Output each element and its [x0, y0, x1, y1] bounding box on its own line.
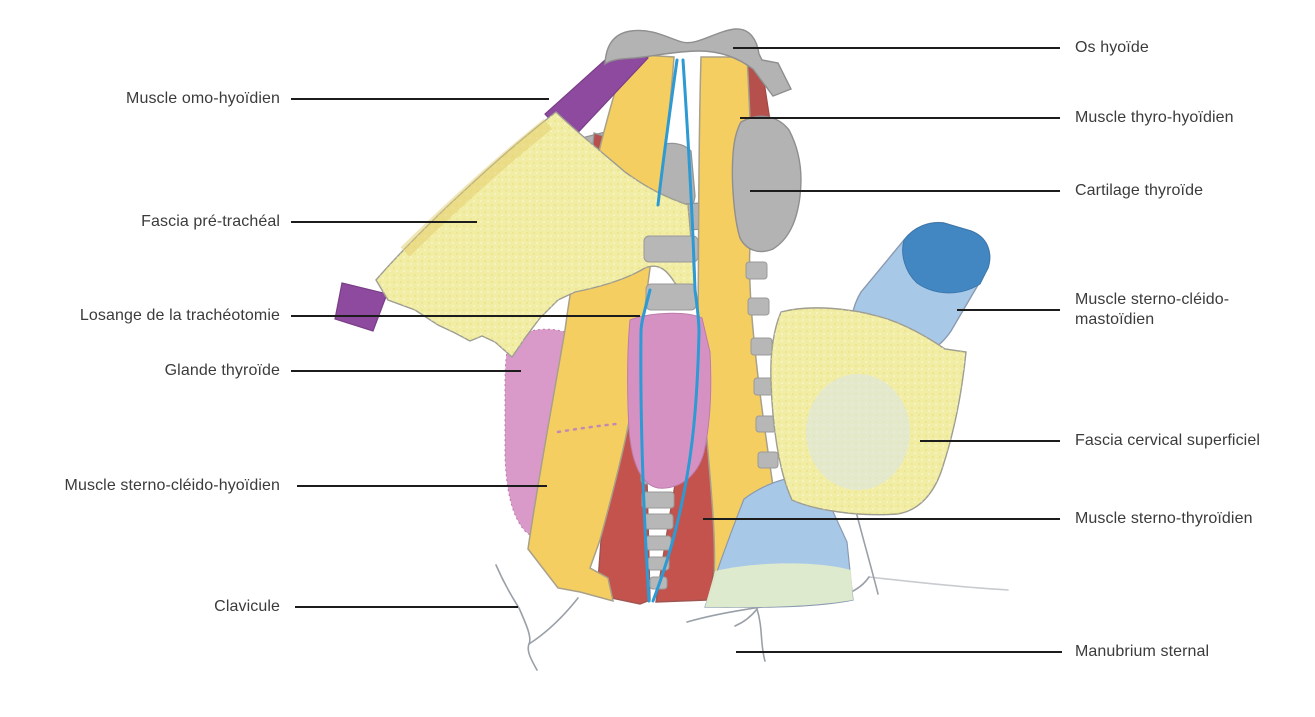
leader-sterno-thyroidien: [703, 518, 1060, 520]
leader-clavicule: [295, 606, 518, 608]
leader-sterno-cleido-hyoidien: [297, 485, 547, 487]
label-clavicule: Clavicule: [0, 597, 280, 617]
leader-fascia-cervical: [920, 440, 1060, 442]
anatomical-figure: Muscle omo-hyoïdien Fascia pré-trachéal …: [0, 0, 1315, 717]
label-fascia-cervical-superficiel: Fascia cervical superficiel: [1075, 431, 1260, 451]
leader-cartilage-thyroide: [750, 190, 1060, 192]
leader-sterno-cleido-mastoidien: [957, 309, 1060, 311]
leader-omo-hyoidien: [291, 98, 549, 100]
label-manubrium-sternal: Manubrium sternal: [1075, 642, 1209, 662]
label-muscle-omo-hyoidien: Muscle omo-hyoïdien: [0, 89, 280, 109]
label-losange-tracheotomie: Losange de la trachéotomie: [0, 306, 280, 326]
label-glande-thyroide: Glande thyroïde: [0, 361, 280, 381]
cartilage-thyroide: [732, 116, 801, 251]
label-muscle-sterno-thyroidien: Muscle sterno-thyroïdien: [1075, 509, 1253, 529]
label-fascia-pre-tracheal: Fascia pré-trachéal: [0, 212, 280, 232]
muscle-omo-hyoidien-lower: [335, 283, 387, 331]
leader-os-hyoide: [733, 47, 1060, 49]
scm-green-tint: [705, 563, 853, 607]
leader-fascia-pre-tracheal: [291, 221, 477, 223]
label-os-hyoide: Os hyoïde: [1075, 38, 1149, 58]
scm-cylinder-cap: [903, 223, 990, 293]
label-muscle-thyro-hyoidien: Muscle thyro-hyoïdien: [1075, 108, 1234, 128]
label-cartilage-thyroide: Cartilage thyroïde: [1075, 181, 1203, 201]
label-muscle-sterno-cleido-mastoidien: Muscle sterno-cléido-mastoïdien: [1075, 290, 1270, 330]
label-muscle-sterno-cleido-hyoidien: Muscle sterno-cléido-hyoïdien: [0, 476, 280, 496]
leader-manubrium: [736, 651, 1062, 653]
leader-thyro-hyoidien: [740, 117, 1060, 119]
leader-glande-thyroide: [291, 370, 521, 372]
leader-losange: [291, 315, 640, 317]
